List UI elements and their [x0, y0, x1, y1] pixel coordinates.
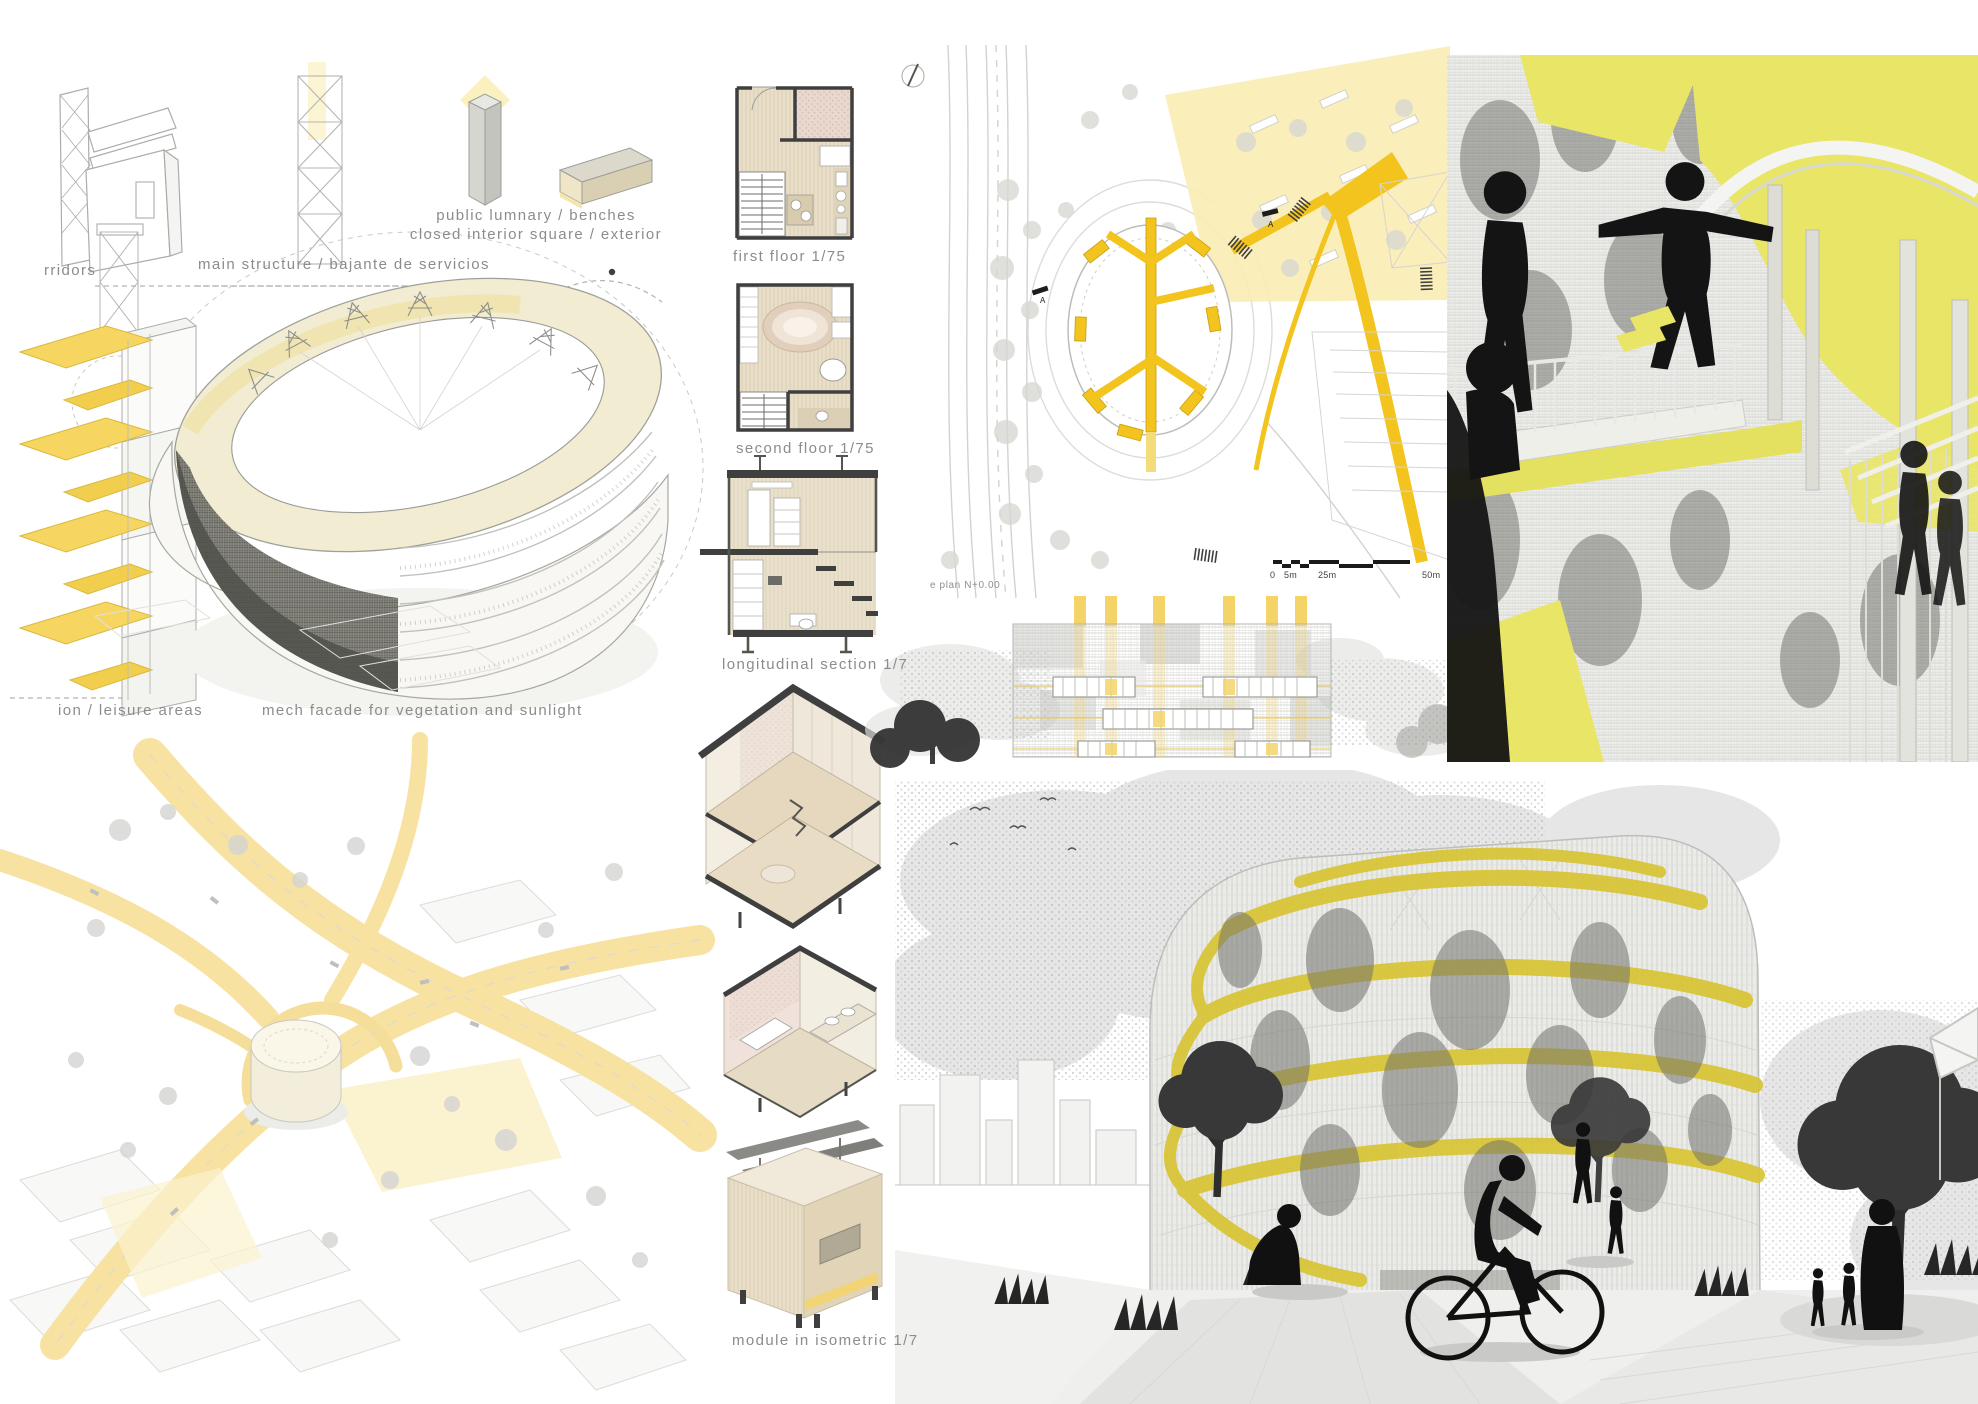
scale-5m: 5m [1284, 570, 1297, 580]
lumnary-label-line2: closed interior square / exterior [366, 225, 706, 244]
main-building-axonometric [148, 234, 689, 716]
lumnary-drawing [460, 75, 510, 205]
site-plan-drawing [890, 40, 1450, 600]
leader-dot [609, 269, 615, 275]
second-floor-label: second floor 1/75 [736, 440, 875, 457]
exterior-render [880, 760, 1978, 1404]
scale-50m: 50m [1422, 570, 1440, 580]
first-floor-plan [737, 87, 852, 239]
bench-drawing [560, 148, 652, 209]
module-drawings-column [700, 87, 884, 1328]
lumnary-label-line1: public lumnary / benches [366, 206, 706, 225]
closed-module-isometric [726, 1120, 884, 1328]
scale-zero: 0 [1270, 570, 1275, 580]
project-cylinder [244, 1020, 348, 1130]
siteplan-caption: e plan N+0.00 [930, 580, 1000, 591]
crosswalk [1420, 268, 1433, 289]
first-floor-label: first floor 1/75 [733, 248, 846, 265]
longitudinal-section-drawing [700, 456, 878, 652]
scale-25m: 25m [1318, 570, 1336, 580]
module-isometric-label: module in isometric 1/7 [732, 1332, 918, 1349]
presentation-board: rridors main structure / bajante de serv… [0, 0, 1978, 1404]
bathroom-module-axon [724, 948, 876, 1117]
elevation-drawing [865, 596, 1475, 768]
second-floor-plan [738, 285, 852, 430]
corridors-label: rridors [44, 262, 96, 279]
cutaway-module-axon [700, 688, 884, 928]
leisure-label: ion / leisure areas [58, 702, 203, 719]
module-on-structure-drawing [60, 88, 182, 272]
concept-diagrams [10, 62, 703, 716]
section-marker-a-label: A [1268, 220, 1273, 229]
main-structure-label: main structure / bajante de servicios [198, 256, 490, 273]
section-marker-a-label: A [1040, 296, 1045, 305]
service-tower-drawing [298, 62, 342, 264]
interior-render [1440, 55, 1978, 762]
mech-facade-label: mech facade for vegetation and sunlight [262, 702, 583, 719]
lumnary-label: public lumnary / benches closed interior… [366, 206, 706, 244]
aerial-site-drawing [0, 740, 700, 1390]
longitudinal-section-label: longitudinal section 1/7 [722, 656, 908, 673]
facade-yellow-strips [1074, 596, 1307, 626]
yellow-stem [1146, 432, 1156, 472]
